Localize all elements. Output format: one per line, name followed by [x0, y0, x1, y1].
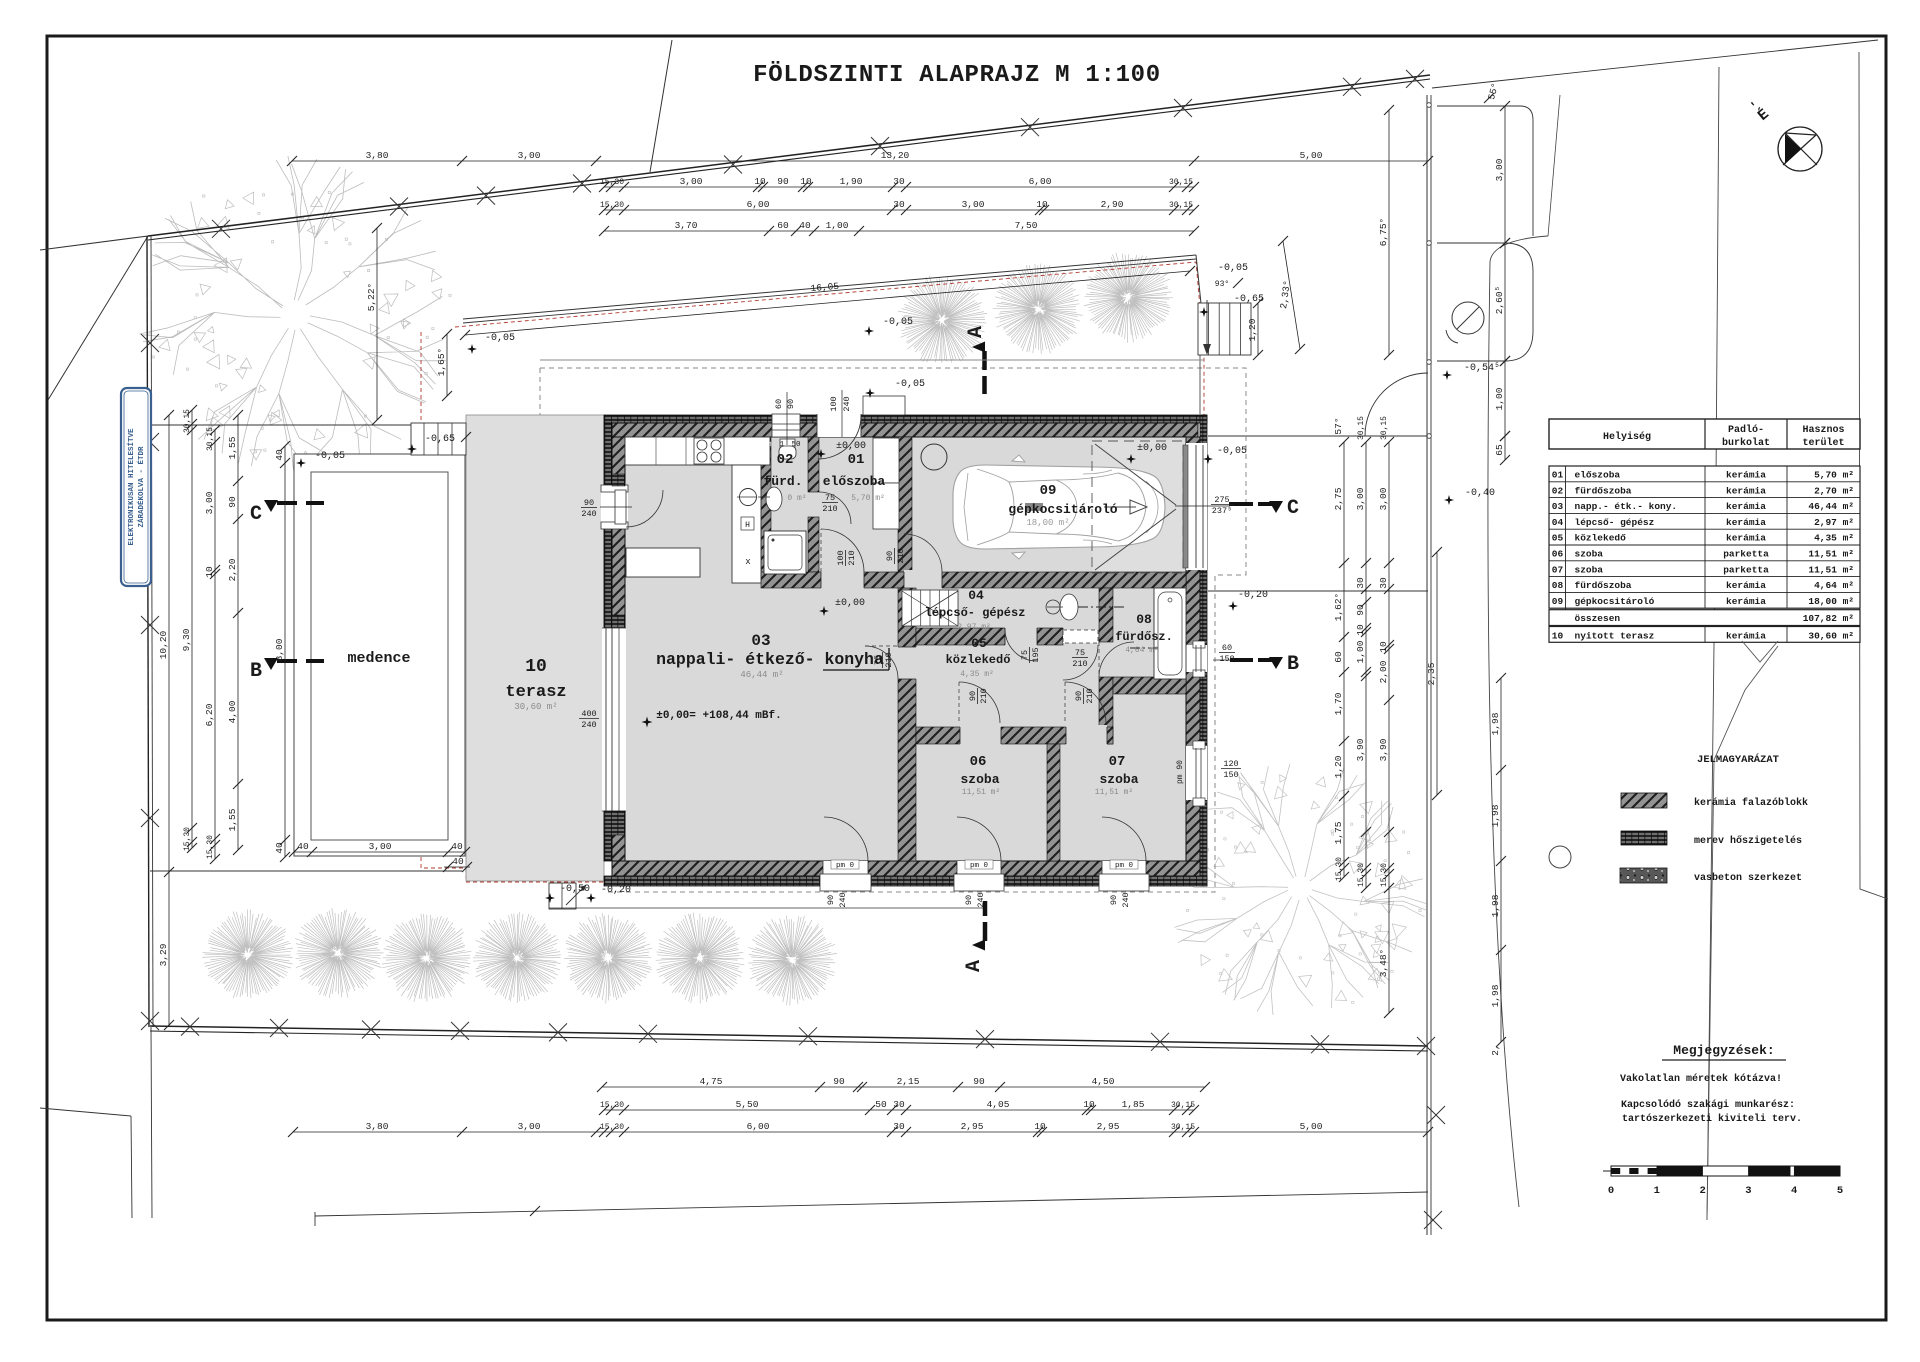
- svg-text:-0,54⁵: -0,54⁵: [1464, 363, 1500, 374]
- svg-text:90: 90: [973, 1076, 985, 1087]
- svg-text:4,50: 4,50: [1092, 1076, 1115, 1087]
- svg-text:10: 10: [204, 566, 215, 578]
- svg-text:07: 07: [1109, 754, 1126, 770]
- svg-text:40: 40: [297, 841, 309, 852]
- svg-text:3,00: 3,00: [680, 176, 703, 187]
- svg-text:150: 150: [1223, 770, 1238, 780]
- svg-text:1,55: 1,55: [227, 808, 238, 831]
- svg-text:4,64 m²: 4,64 m²: [1814, 580, 1854, 591]
- svg-text:-0,20: -0,20: [601, 885, 631, 896]
- svg-text:15,30: 15,30: [206, 835, 215, 859]
- svg-text:2,90: 2,90: [1101, 199, 1124, 210]
- svg-text:1,98: 1,98: [1490, 894, 1501, 917]
- svg-text:75: 75: [825, 493, 835, 503]
- svg-text:6,00: 6,00: [1029, 176, 1052, 187]
- svg-text:4,05: 4,05: [987, 1099, 1010, 1110]
- svg-text:kerámia: kerámia: [1726, 501, 1766, 512]
- svg-text:11,51 m²: 11,51 m²: [962, 788, 1000, 797]
- svg-text:30: 30: [893, 1099, 905, 1110]
- svg-text:3,00: 3,00: [518, 150, 541, 161]
- svg-text:6,00: 6,00: [747, 199, 770, 210]
- svg-text:Vakolatlan méretek kótázva!: Vakolatlan méretek kótázva!: [1620, 1073, 1782, 1085]
- svg-text:30,15: 30,15: [1171, 1101, 1195, 1110]
- svg-text:90: 90: [227, 496, 238, 508]
- svg-text:90: 90: [885, 551, 895, 561]
- svg-text:3,70: 3,70: [675, 220, 698, 231]
- svg-text:2,95: 2,95: [961, 1121, 984, 1132]
- svg-text:H: H: [745, 521, 750, 530]
- svg-text:4,75: 4,75: [700, 1076, 723, 1087]
- svg-text:02: 02: [1552, 485, 1564, 496]
- svg-text:40: 40: [451, 841, 463, 852]
- svg-text:60: 60: [1222, 643, 1232, 653]
- svg-text:05: 05: [1552, 533, 1564, 544]
- svg-text:kerámia: kerámia: [1726, 596, 1766, 607]
- svg-text:terasz: terasz: [505, 683, 566, 702]
- svg-text:240: 240: [842, 396, 852, 411]
- svg-text:2,: 2,: [1490, 1044, 1501, 1055]
- svg-text:-0,05: -0,05: [895, 379, 925, 390]
- svg-text:C: C: [1287, 497, 1299, 520]
- svg-text:szoba: szoba: [960, 772, 999, 787]
- svg-text:04: 04: [1552, 517, 1564, 528]
- svg-text:90: 90: [833, 1076, 845, 1087]
- svg-text:2,70 m²: 2,70 m²: [1814, 485, 1854, 496]
- svg-text:1,55: 1,55: [227, 436, 238, 459]
- svg-text:30: 30: [1378, 577, 1389, 589]
- svg-text:90: 90: [964, 895, 974, 905]
- svg-text:240: 240: [581, 509, 596, 519]
- svg-text:90: 90: [1074, 691, 1084, 701]
- svg-text:57°: 57°: [1333, 417, 1344, 434]
- svg-text:30: 30: [893, 199, 905, 210]
- svg-text:2: 2: [1699, 1185, 1705, 1197]
- svg-text:3,90: 3,90: [1355, 738, 1366, 761]
- svg-text:1,00: 1,00: [826, 220, 849, 231]
- svg-text:1,20: 1,20: [1247, 318, 1258, 341]
- svg-text:3,48°: 3,48°: [1378, 949, 1389, 978]
- svg-text:szoba: szoba: [1099, 772, 1138, 787]
- svg-text:4: 4: [1791, 1185, 1797, 1197]
- svg-text:parketta: parketta: [1723, 549, 1769, 560]
- svg-text:210: 210: [847, 550, 857, 565]
- svg-text:1,20: 1,20: [1333, 755, 1344, 778]
- svg-text:90: 90: [777, 176, 789, 187]
- svg-text:60: 60: [777, 220, 789, 231]
- svg-text:10: 10: [525, 657, 547, 677]
- svg-text:kerámia falazóblokk: kerámia falazóblokk: [1694, 797, 1808, 809]
- svg-text:-0,05: -0,05: [315, 451, 345, 462]
- svg-text:210: 210: [822, 504, 837, 514]
- svg-text:kerámia: kerámia: [1726, 580, 1766, 591]
- svg-text:kerámia: kerámia: [1726, 485, 1766, 496]
- svg-text:01: 01: [848, 452, 865, 468]
- svg-text:fürdőszoba: fürdőszoba: [1575, 485, 1632, 496]
- svg-text:10: 10: [754, 176, 766, 187]
- svg-text:1,98: 1,98: [1490, 804, 1501, 827]
- svg-text:napp.- étk.- kony.: napp.- étk.- kony.: [1575, 501, 1678, 512]
- svg-text:9,30: 9,30: [181, 628, 192, 651]
- svg-text:15,30: 15,30: [600, 178, 624, 187]
- svg-text:30,15: 30,15: [206, 427, 215, 451]
- svg-text:5,00: 5,00: [1300, 1121, 1323, 1132]
- svg-text:210: 210: [884, 652, 894, 667]
- svg-text:4,00: 4,00: [227, 700, 238, 723]
- svg-text:3,00: 3,00: [518, 1121, 541, 1132]
- svg-text:1,90: 1,90: [840, 176, 863, 187]
- svg-text:medence: medence: [347, 650, 410, 667]
- svg-text:1,00: 1,00: [1494, 387, 1505, 410]
- svg-text:90: 90: [1109, 895, 1119, 905]
- svg-text:Megjegyzések:: Megjegyzések:: [1673, 1043, 1774, 1058]
- svg-text:65: 65: [1494, 444, 1505, 456]
- svg-text:2,75: 2,75: [1333, 487, 1344, 510]
- svg-text:15,30: 15,30: [183, 827, 192, 851]
- svg-text:parketta: parketta: [1723, 564, 1769, 575]
- svg-text:0 m²: 0 m²: [787, 494, 806, 503]
- svg-text:06: 06: [970, 754, 987, 770]
- svg-text:10: 10: [1083, 1099, 1095, 1110]
- svg-text:10,20: 10,20: [158, 630, 169, 659]
- svg-text:30: 30: [893, 176, 905, 187]
- svg-text:-0,65: -0,65: [1234, 294, 1264, 305]
- svg-text:összesen: összesen: [1575, 613, 1621, 624]
- svg-text:50: 50: [791, 441, 801, 449]
- svg-text:210: 210: [1072, 659, 1087, 669]
- svg-text:10: 10: [1036, 199, 1048, 210]
- svg-text:pm 0: pm 0: [1115, 862, 1134, 870]
- svg-text:tartószerkezeti kiviteli terv.: tartószerkezeti kiviteli terv.: [1622, 1113, 1802, 1125]
- svg-text:Padló-: Padló-: [1728, 424, 1764, 436]
- svg-text:4,35 m²: 4,35 m²: [960, 670, 994, 679]
- svg-text:40: 40: [799, 220, 811, 231]
- svg-text:18,00 m²: 18,00 m²: [1026, 518, 1069, 528]
- svg-text:1,70: 1,70: [1333, 692, 1344, 715]
- svg-text:előszoba: előszoba: [1575, 470, 1621, 481]
- svg-text:07: 07: [1552, 564, 1564, 575]
- svg-text:30,60 m²: 30,60 m²: [514, 702, 557, 712]
- svg-text:2,97 m²: 2,97 m²: [1814, 517, 1854, 528]
- svg-text:Kapcsolódó szakági munkarész:: Kapcsolódó szakági munkarész:: [1621, 1099, 1795, 1111]
- svg-text:30,15: 30,15: [1169, 201, 1193, 210]
- svg-text:15,30: 15,30: [1335, 857, 1344, 881]
- svg-text:1: 1: [780, 441, 785, 449]
- svg-text:vasbeton szerkezet: vasbeton szerkezet: [1694, 872, 1802, 884]
- svg-text:±0,00: ±0,00: [1137, 443, 1167, 454]
- svg-text:1,98: 1,98: [1490, 984, 1501, 1007]
- svg-text:-0,50: -0,50: [560, 884, 590, 895]
- svg-text:pm 90: pm 90: [1176, 760, 1185, 784]
- svg-text:40: 40: [452, 856, 464, 867]
- svg-text:6,75°: 6,75°: [1378, 218, 1389, 247]
- svg-text:10: 10: [800, 176, 812, 187]
- svg-text:7,50: 7,50: [1015, 220, 1038, 231]
- svg-text:3,00: 3,00: [369, 841, 392, 852]
- svg-text:10: 10: [1552, 631, 1564, 642]
- svg-text:B: B: [250, 660, 262, 683]
- svg-text:-0,20: -0,20: [1238, 590, 1268, 601]
- svg-text:11,51 m²: 11,51 m²: [1808, 549, 1854, 560]
- svg-text:-0,05: -0,05: [883, 317, 913, 328]
- svg-text:3,90: 3,90: [1378, 738, 1389, 761]
- svg-text:6,00: 6,00: [747, 1121, 770, 1132]
- svg-text:1: 1: [1654, 1185, 1660, 1197]
- svg-text:1,98: 1,98: [1490, 712, 1501, 735]
- svg-text:18,00 m²: 18,00 m²: [1808, 596, 1854, 607]
- svg-text:15,30: 15,30: [1357, 863, 1366, 887]
- svg-text:merev hőszigetelés: merev hőszigetelés: [1694, 835, 1802, 847]
- svg-text:1,85: 1,85: [1122, 1099, 1145, 1110]
- svg-text:15,30: 15,30: [600, 1123, 624, 1132]
- svg-text:15,30: 15,30: [600, 1101, 624, 1110]
- svg-text:03: 03: [1552, 501, 1564, 512]
- svg-text:5,22°: 5,22°: [366, 283, 377, 312]
- svg-text:C: C: [250, 503, 262, 526]
- svg-text:3,00: 3,00: [1494, 158, 1505, 181]
- svg-text:3,80: 3,80: [366, 1121, 389, 1132]
- svg-text:2,97 m²: 2,97 m²: [957, 623, 991, 632]
- svg-text:275: 275: [1214, 495, 1229, 505]
- svg-text:13,20: 13,20: [881, 150, 910, 161]
- svg-text:210: 210: [979, 688, 989, 703]
- svg-text:210: 210: [1085, 688, 1095, 703]
- svg-text:30: 30: [893, 1121, 905, 1132]
- svg-text:240: 240: [1121, 892, 1131, 907]
- svg-text:kerámia: kerámia: [1726, 533, 1766, 544]
- svg-text:3,00: 3,00: [1355, 487, 1366, 510]
- svg-text:05: 05: [971, 636, 987, 651]
- svg-text:kerámia: kerámia: [1726, 470, 1766, 481]
- svg-text:-0,05: -0,05: [1218, 263, 1248, 274]
- svg-text:±0,00= +108,44 mBf.: ±0,00= +108,44 mBf.: [656, 710, 781, 722]
- svg-text:100: 100: [836, 550, 846, 565]
- svg-text:3,00: 3,00: [962, 199, 985, 210]
- svg-text:02: 02: [777, 452, 794, 468]
- svg-text:2,15: 2,15: [897, 1076, 920, 1087]
- svg-text:B: B: [1287, 653, 1299, 676]
- svg-text:40: 40: [274, 842, 285, 854]
- svg-text:1,62°: 1,62°: [1333, 593, 1344, 622]
- svg-text:5,00: 5,00: [1300, 150, 1323, 161]
- svg-text:3,00: 3,00: [1378, 487, 1389, 510]
- svg-text:szoba: szoba: [1575, 564, 1604, 575]
- svg-text:-0,40: -0,40: [1465, 488, 1495, 499]
- svg-text:nyitott terasz: nyitott terasz: [1575, 631, 1655, 642]
- svg-text:120: 120: [1223, 759, 1238, 769]
- svg-text:-0,05: -0,05: [485, 333, 515, 344]
- svg-text:fürdősz.: fürdősz.: [1115, 630, 1173, 644]
- svg-text:237⁵: 237⁵: [1212, 506, 1232, 516]
- svg-text:240: 240: [581, 720, 596, 730]
- svg-text:lépcső- gépész: lépcső- gépész: [925, 606, 1026, 620]
- svg-text:-0,05: -0,05: [1217, 446, 1247, 457]
- svg-text:3,29: 3,29: [158, 943, 169, 966]
- svg-text:240: 240: [838, 892, 848, 907]
- svg-text:30,15: 30,15: [183, 409, 192, 433]
- svg-text:90: 90: [968, 691, 978, 701]
- svg-text:09: 09: [1040, 483, 1057, 499]
- svg-text:közlekedő: közlekedő: [946, 653, 1011, 667]
- svg-text:15,30: 15,30: [600, 201, 624, 210]
- svg-text:75: 75: [1020, 650, 1030, 660]
- svg-text:5,70 m²: 5,70 m²: [1814, 470, 1854, 481]
- svg-text:pm: pm: [762, 441, 772, 449]
- svg-text:3,00: 3,00: [204, 491, 215, 514]
- svg-text:Helyiség: Helyiség: [1603, 431, 1651, 443]
- svg-text:5,50: 5,50: [736, 1099, 759, 1110]
- svg-text:01: 01: [1552, 470, 1564, 481]
- svg-text:09: 09: [1552, 596, 1564, 607]
- svg-text:240: 240: [976, 892, 986, 907]
- svg-text:46,44 m²: 46,44 m²: [1808, 501, 1854, 512]
- svg-text:burkolat: burkolat: [1722, 437, 1770, 449]
- svg-text:50: 50: [875, 1099, 887, 1110]
- svg-text:75: 75: [873, 655, 883, 665]
- svg-text:6,20: 6,20: [204, 703, 215, 726]
- svg-text:90: 90: [584, 498, 594, 508]
- svg-text:ZÁRADÉKOLVA - ÉTDR: ZÁRADÉKOLVA - ÉTDR: [137, 446, 146, 528]
- svg-text:30,60 m²: 30,60 m²: [1808, 631, 1854, 642]
- svg-text:szoba: szoba: [1575, 549, 1604, 560]
- svg-text:FÖLDSZINTI ALAPRAJZ M 1:100: FÖLDSZINTI ALAPRAJZ M 1:100: [753, 61, 1161, 89]
- svg-text:2,00: 2,00: [1378, 660, 1389, 683]
- svg-text:10: 10: [1355, 624, 1366, 636]
- svg-text:11,51 m²: 11,51 m²: [1808, 564, 1854, 575]
- svg-text:40: 40: [274, 449, 285, 461]
- svg-text:400: 400: [581, 709, 596, 719]
- svg-text:fürd.: fürd.: [763, 474, 802, 489]
- svg-text:pm 0: pm 0: [970, 862, 989, 870]
- svg-text:fürdőszoba: fürdőszoba: [1575, 580, 1632, 591]
- svg-text:2,20: 2,20: [227, 558, 238, 581]
- svg-text:8,00: 8,00: [274, 638, 285, 661]
- svg-text:pm 0: pm 0: [836, 862, 855, 870]
- svg-text:1,00: 1,00: [1355, 640, 1366, 663]
- svg-text:±0,00: ±0,00: [836, 441, 866, 452]
- svg-text:75: 75: [1075, 648, 1085, 658]
- svg-text:gépkocsitároló: gépkocsitároló: [1008, 502, 1117, 517]
- svg-text:előszoba: előszoba: [823, 474, 886, 489]
- svg-text:JELMAGYARÁZAT: JELMAGYARÁZAT: [1697, 752, 1779, 766]
- svg-text:93°: 93°: [1215, 280, 1229, 289]
- svg-text:5: 5: [1837, 1185, 1843, 1197]
- svg-text:lépcső- gépész: lépcső- gépész: [1575, 517, 1655, 528]
- svg-text:4,64 m²: 4,64 m²: [1125, 646, 1159, 655]
- svg-text:2,35: 2,35: [1426, 662, 1437, 685]
- svg-text:0: 0: [1608, 1185, 1614, 1197]
- svg-text:04: 04: [968, 588, 984, 603]
- svg-text:3: 3: [1745, 1185, 1751, 1197]
- svg-text:1,75: 1,75: [1333, 821, 1344, 844]
- svg-text:Hasznos: Hasznos: [1802, 425, 1844, 436]
- svg-text:30: 30: [1355, 577, 1366, 589]
- svg-text:A: A: [963, 960, 986, 972]
- svg-text:08: 08: [1136, 612, 1152, 627]
- svg-text:15,30: 15,30: [1380, 863, 1389, 887]
- svg-text:10: 10: [1034, 1121, 1046, 1132]
- svg-text:terület: terület: [1802, 437, 1844, 449]
- svg-text:közlekedő: közlekedő: [1575, 533, 1627, 544]
- svg-text:gépkocsitároló: gépkocsitároló: [1575, 596, 1655, 607]
- svg-text:210: 210: [896, 548, 906, 563]
- svg-text:08: 08: [1552, 580, 1564, 591]
- svg-text:2,60⁵: 2,60⁵: [1494, 286, 1505, 315]
- svg-text:nappali- étkező- konyha: nappali- étkező- konyha: [656, 650, 884, 669]
- svg-text:30,15: 30,15: [1169, 178, 1193, 187]
- svg-text:5,70 m²: 5,70 m²: [851, 494, 885, 503]
- svg-text:150: 150: [1219, 654, 1234, 664]
- svg-text:3,80: 3,80: [366, 150, 389, 161]
- svg-text:ELEKTRONIKUSAN HITELESÍTVE: ELEKTRONIKUSAN HITELESÍTVE: [127, 428, 136, 546]
- svg-text:30,15: 30,15: [1171, 1123, 1195, 1132]
- svg-text:90: 90: [1355, 604, 1366, 616]
- svg-text:195: 195: [1031, 647, 1041, 662]
- svg-text:90: 90: [786, 399, 796, 409]
- svg-text:10: 10: [1378, 641, 1389, 653]
- svg-text:-0,65: -0,65: [425, 434, 455, 445]
- svg-text:46,44 m²: 46,44 m²: [740, 670, 783, 680]
- svg-text:30,15: 30,15: [1357, 416, 1366, 440]
- svg-text:06: 06: [1552, 549, 1564, 560]
- svg-text:kerámia: kerámia: [1726, 517, 1766, 528]
- svg-text:30,15: 30,15: [1380, 416, 1389, 440]
- svg-text:kerámia: kerámia: [1726, 631, 1766, 642]
- svg-text:2,95: 2,95: [1097, 1121, 1120, 1132]
- svg-text:11,51 m²: 11,51 m²: [1095, 788, 1133, 797]
- svg-text:x: x: [745, 557, 750, 567]
- svg-text:A: A: [965, 326, 988, 338]
- svg-text:1,65°: 1,65°: [436, 348, 447, 377]
- svg-text:60: 60: [774, 399, 784, 409]
- svg-text:90: 90: [826, 895, 836, 905]
- svg-text:±0,00: ±0,00: [835, 598, 865, 609]
- svg-text:107,82 m²: 107,82 m²: [1803, 613, 1854, 624]
- svg-text:4,35 m²: 4,35 m²: [1814, 533, 1854, 544]
- svg-text:100: 100: [829, 396, 839, 411]
- svg-text:60: 60: [1333, 651, 1344, 663]
- svg-text:03: 03: [751, 632, 770, 650]
